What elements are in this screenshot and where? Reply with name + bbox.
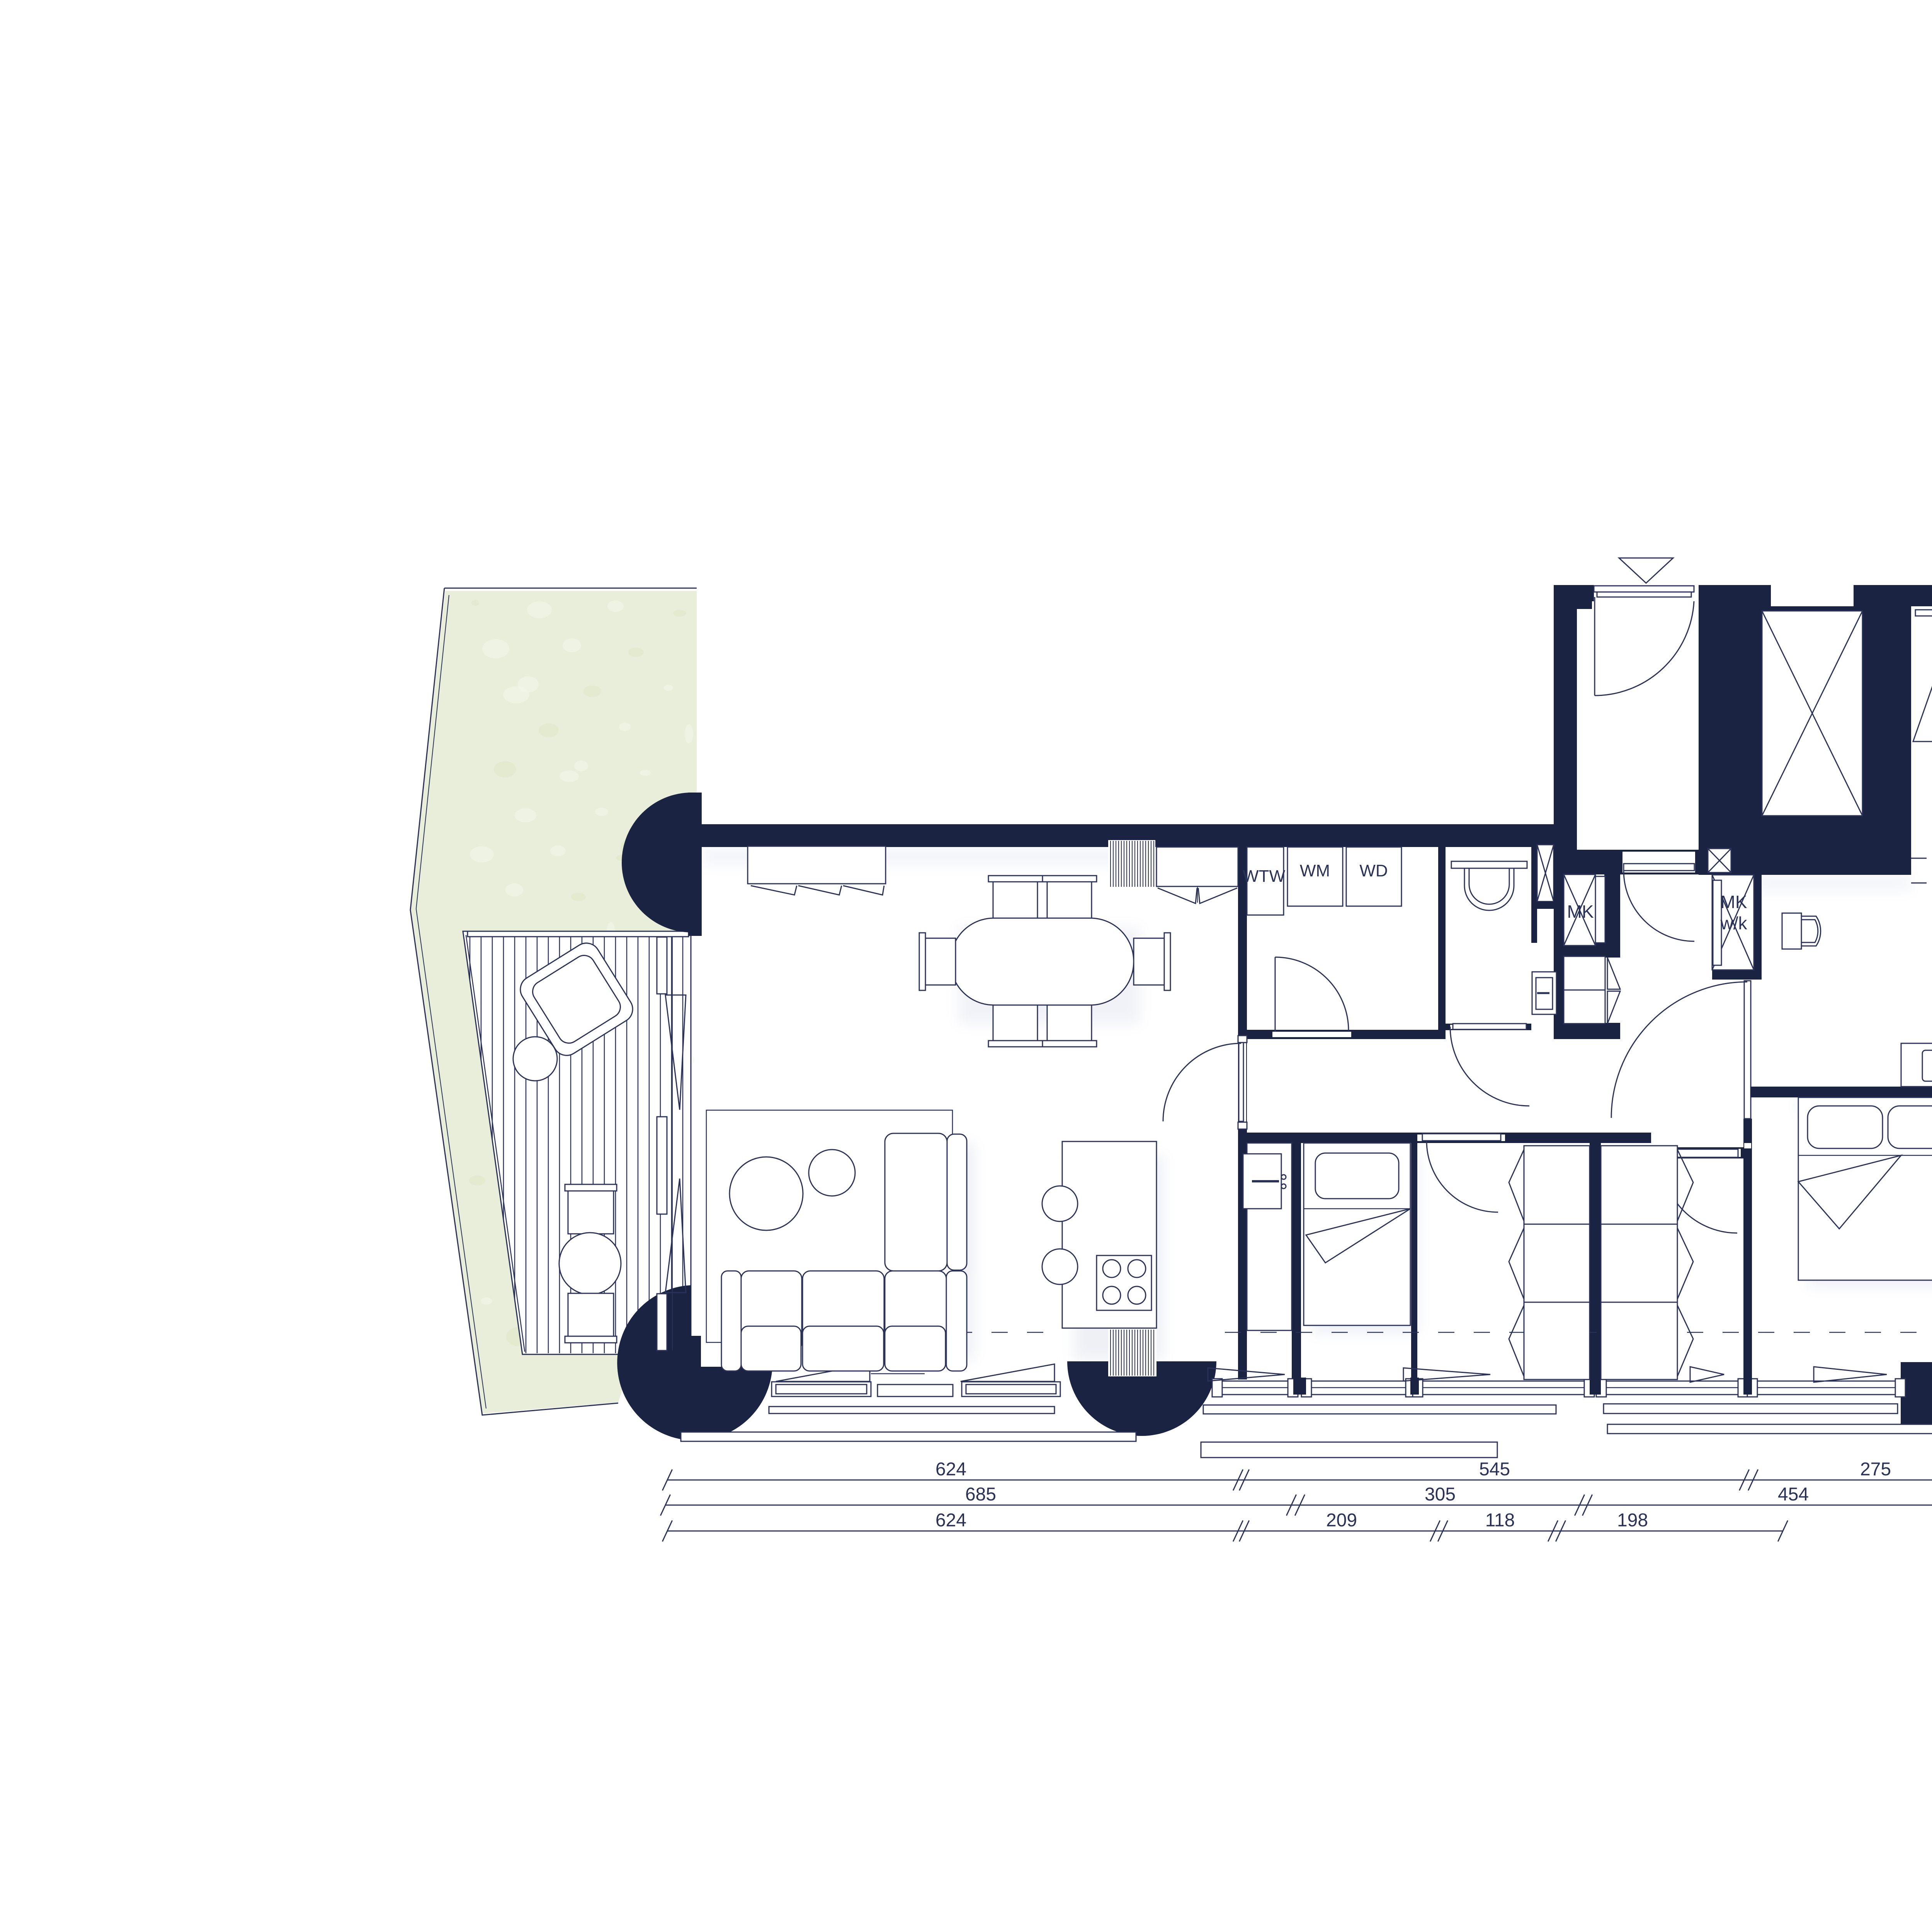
- svg-text:118: 118: [1485, 1510, 1515, 1531]
- svg-text:305: 305: [1425, 1484, 1456, 1505]
- svg-text:685: 685: [965, 1484, 996, 1505]
- svg-text:198: 198: [1617, 1510, 1648, 1531]
- svg-text:624: 624: [935, 1459, 966, 1480]
- svg-text:WM: WM: [1300, 861, 1330, 880]
- svg-text:275: 275: [1860, 1459, 1891, 1480]
- svg-text:WD: WD: [1359, 861, 1388, 880]
- svg-text:209: 209: [1326, 1510, 1357, 1531]
- svg-text:624: 624: [935, 1510, 966, 1531]
- svg-text:w/k: w/k: [1720, 913, 1748, 933]
- svg-text:WTW: WTW: [1243, 867, 1285, 886]
- svg-text:MK: MK: [1567, 902, 1594, 922]
- svg-text:MK: MK: [1721, 892, 1747, 912]
- svg-text:545: 545: [1479, 1459, 1510, 1480]
- svg-text:454: 454: [1778, 1484, 1809, 1505]
